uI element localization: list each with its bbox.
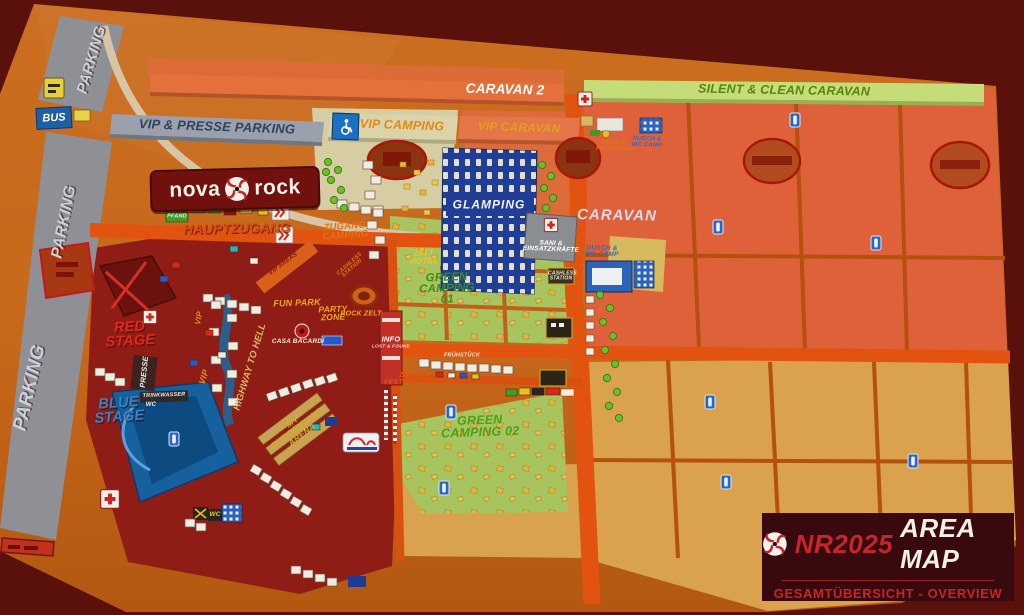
blue-stage-label: BLUE STAGE <box>89 395 149 427</box>
nova-rock-logo: nova rock <box>149 166 320 212</box>
casa-bacardi-sign <box>295 324 309 338</box>
zelt-hotel-label: ZELT HOTEL <box>409 249 440 265</box>
zugang-camping-label: ZUGANG CAMPING <box>317 220 372 242</box>
nova-rock-spiral-icon <box>224 176 251 203</box>
lost-found-label: LOST & FOUND <box>372 346 410 351</box>
legend-spiral-icon <box>762 528 788 560</box>
food-fruehstueck-label: FOOD & FRÜHSTÜCK <box>596 141 632 154</box>
stage-dark-box <box>348 576 366 587</box>
barrier-stripe <box>393 394 397 444</box>
nova-rock-logo-right: rock <box>254 175 301 200</box>
bus-label: BUS <box>42 111 66 124</box>
rock-zelt-ring <box>351 286 377 306</box>
pfand-label: PFAND <box>167 214 187 219</box>
red-outlined-lot <box>40 243 94 298</box>
nova-rock-logo-left: nova <box>169 177 221 202</box>
area-map: PARKING PARKING PARKING BUS VIP & PRESSE… <box>0 0 1024 615</box>
wc-label-yellow: WC <box>209 512 220 518</box>
fruehstueck-label: FRÜHSTÜCK <box>444 353 480 358</box>
red-stage-label: RED STAGE <box>100 320 159 351</box>
bus-stop-sign: BUS <box>35 106 72 130</box>
blue-sign <box>322 336 342 345</box>
legend-divider <box>782 580 994 581</box>
dusch-wc-camp-label-mid: DUSCH & WC CAMP <box>583 245 621 258</box>
dusch-wc-camp-label-north: DUSCH & WC CAMP <box>630 137 664 150</box>
info-label: INFO <box>382 335 401 342</box>
green-camping-01-label: GREEN CAMPING 01 <box>410 271 483 306</box>
barrier-stripe <box>384 390 388 440</box>
casa-bacardi-label: CASA BACARDÍ <box>272 339 324 345</box>
legend-title: AREA MAP <box>900 513 1014 575</box>
green-camping-02-label: GREEN CAMPING 02 <box>440 414 521 441</box>
cashless-station-label-1: CASHLESS STATION <box>548 271 574 281</box>
caravan-2-label: CARAVAN 2 <box>466 83 545 98</box>
caravan-label: CARAVAN <box>577 208 657 224</box>
vip-caravan-label: VIP CARAVAN <box>477 121 560 135</box>
legend-code: NR2025 <box>795 529 893 560</box>
hauptzugang-label: HAUPTZUGANG <box>183 222 290 237</box>
legend-subtitle: GESAMTÜBERSICHT - OVERVIEW <box>774 586 1002 601</box>
sani-label: SANI & EINSATZKRÄFTE <box>519 240 583 255</box>
bottom-left-gate-sign <box>1 538 54 556</box>
wheelchair-icon <box>332 113 360 141</box>
cross-road <box>390 350 1010 357</box>
red-bull-sign <box>343 433 379 452</box>
glamping-label: GLAMPING <box>453 199 526 210</box>
wc-label-white: WC <box>146 403 156 409</box>
zugang-festivalgelaende-label: ZUGANG FESTIVALGELÄNDE <box>384 371 446 386</box>
rock-zelt-label: ROCK ZELT <box>340 312 381 319</box>
legend-panel: NR2025 AREA MAP GESAMTÜBERSICHT - OVERVI… <box>762 513 1014 601</box>
